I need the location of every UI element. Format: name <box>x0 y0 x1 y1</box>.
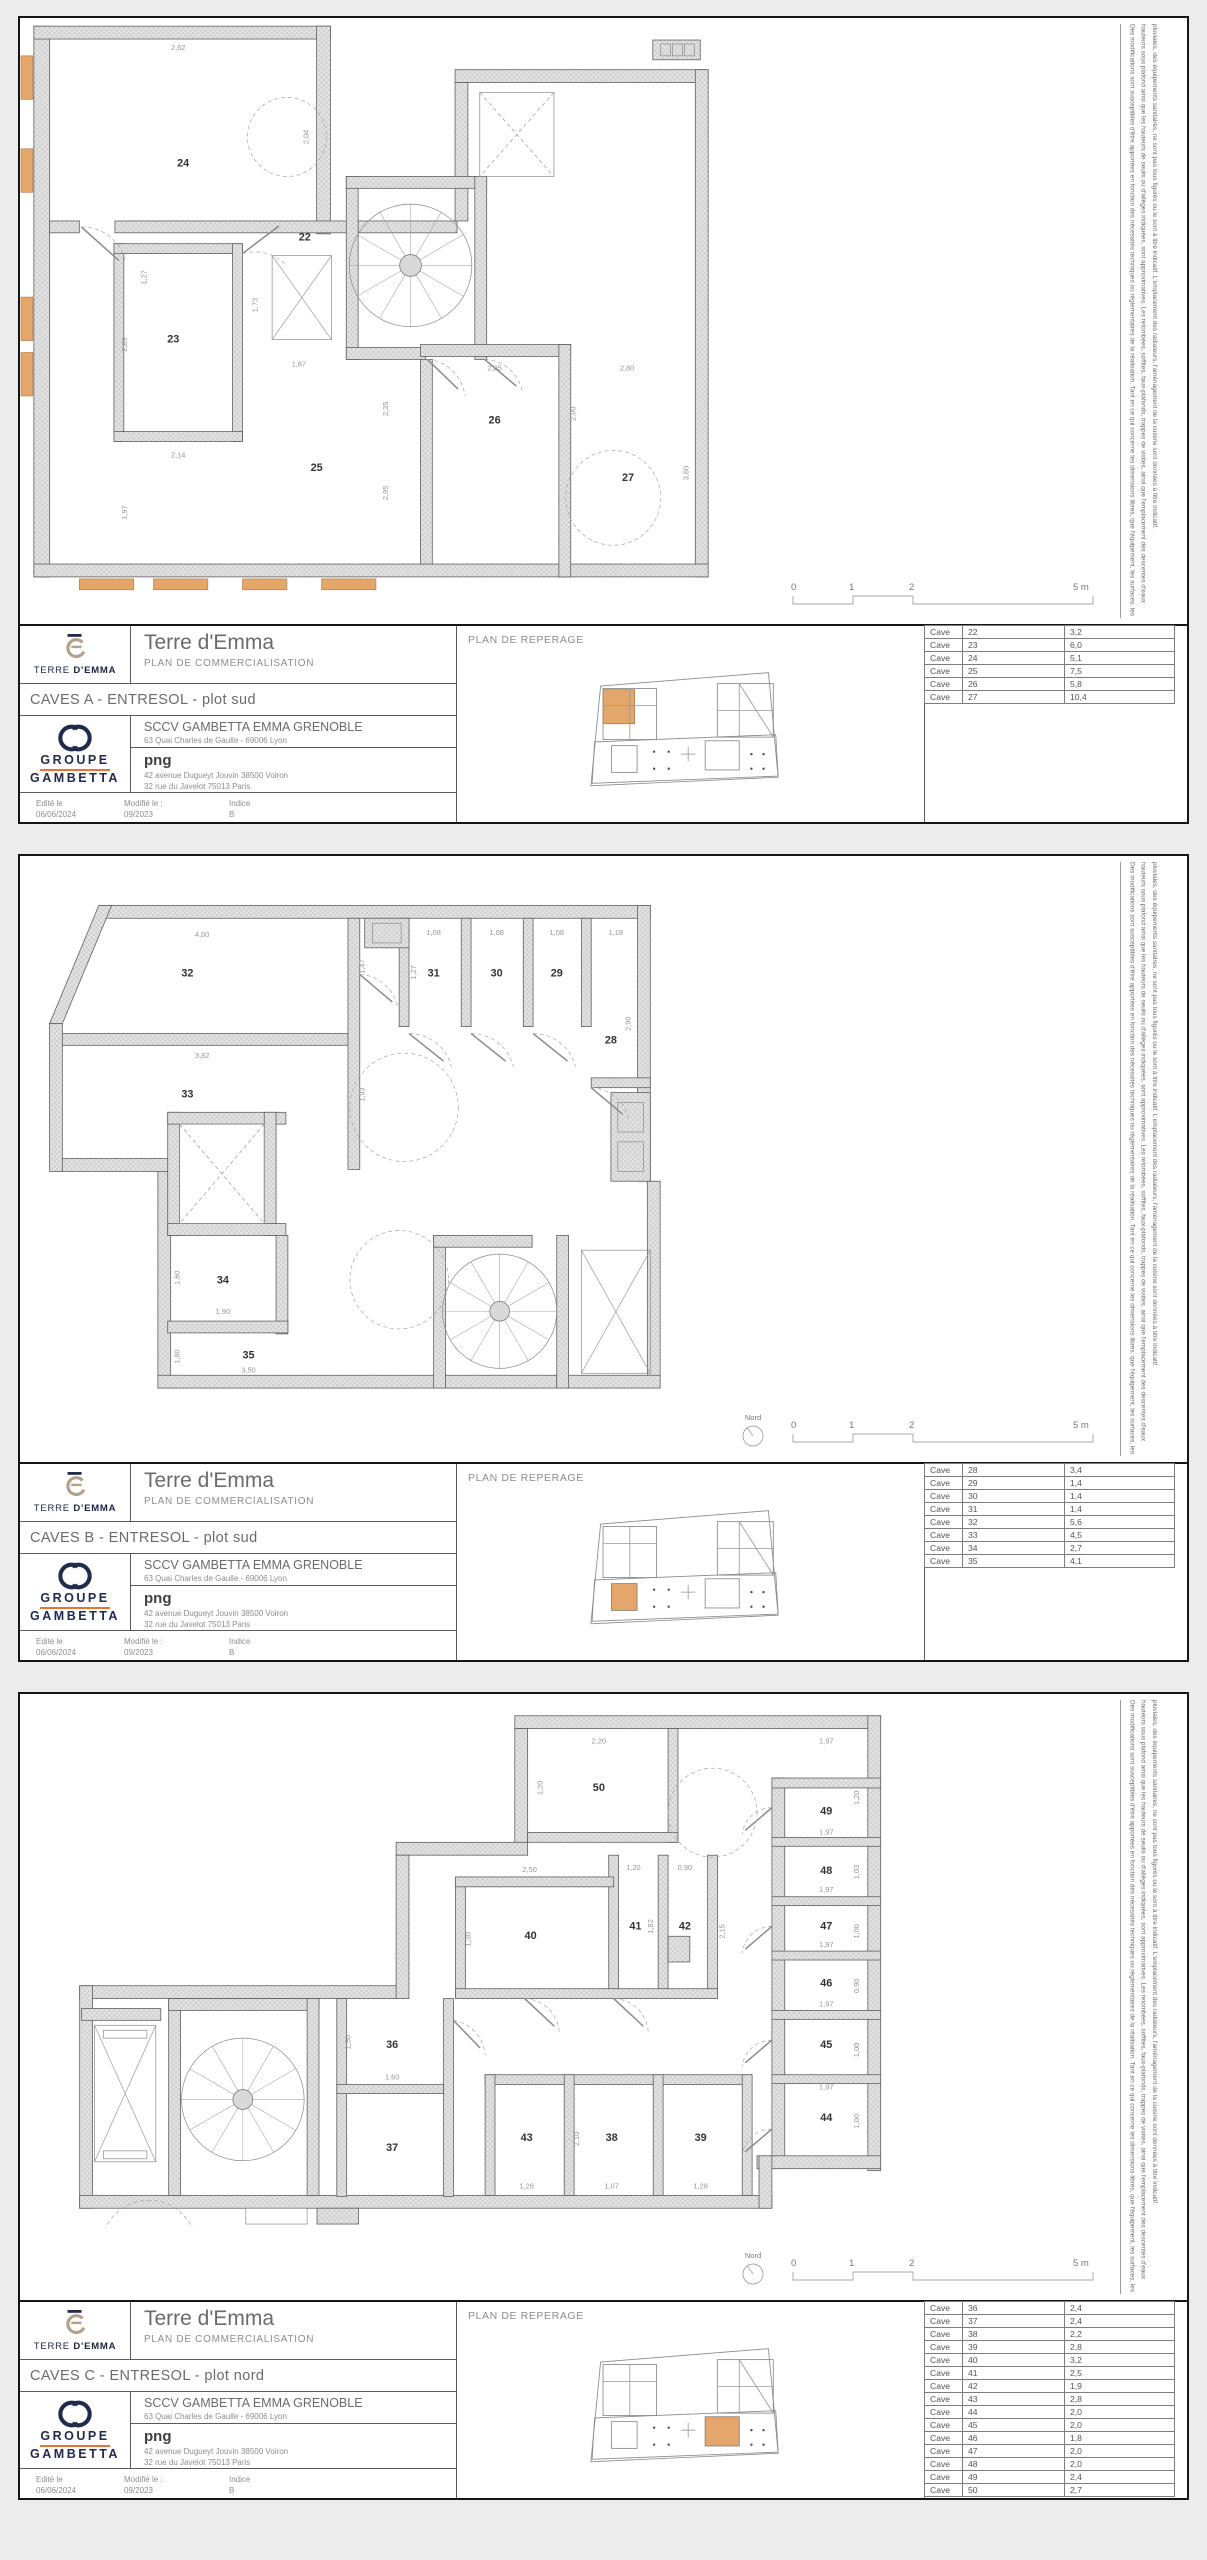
title-block-c: TERRE D'EMMA Terre d'Emma PLAN DE COMMER… <box>20 2300 1187 2498</box>
dim-label: 1,07 <box>604 2181 618 2190</box>
modified-value: 09/2023 <box>124 2485 229 2496</box>
room-number: 32 <box>181 967 193 979</box>
room-number: 29 <box>551 967 563 979</box>
north-compass-icon <box>740 2260 766 2286</box>
cave-label: Cave <box>925 2458 963 2471</box>
room-number: 37 <box>386 2142 398 2154</box>
indice-label: Indice <box>229 1636 319 1647</box>
title-block-left: TERRE D'EMMA Terre d'Emma PLAN DE COMMER… <box>20 2302 457 2498</box>
cave-label: Cave <box>925 1503 963 1516</box>
cave-area: 2,0 <box>1065 2406 1175 2419</box>
issue-row: Edité le06/06/2024 Modifié le :09/2023 I… <box>20 1631 456 1659</box>
dim-label: 2,95 <box>381 486 390 500</box>
dim-label: 2,35 <box>381 402 390 416</box>
scale-tick-0: 0 <box>791 1420 796 1431</box>
header-row: TERRE D'EMMA Terre d'Emma PLAN DE COMMER… <box>20 1464 456 1522</box>
groupe-label: GROUPE <box>40 1591 109 1609</box>
scale-bar: 0 1 2 5 m <box>791 2256 1095 2286</box>
table-row: Cave311,4 <box>925 1503 1175 1516</box>
table-row: Cave403,2 <box>925 2354 1175 2367</box>
scale-tick-5: 5 m <box>1073 1420 1089 1431</box>
dim-label: 1,60 <box>385 2073 399 2082</box>
scale-tick-0: 0 <box>791 2258 796 2269</box>
room-number: 33 <box>181 1089 193 1101</box>
dim-label: 1,97 <box>819 2083 833 2092</box>
indice-cell: IndiceB <box>229 1636 319 1659</box>
table-row: Cave432,8 <box>925 2393 1175 2406</box>
cave-area: 2,8 <box>1065 2341 1175 2354</box>
edited-label: Edité le <box>36 2474 124 2485</box>
dim-label: 1,97 <box>819 1736 833 1745</box>
dim-label: 1,20 <box>535 1781 544 1795</box>
cave-area: 6,0 <box>1065 639 1175 652</box>
cave-label: Cave <box>925 2484 963 2497</box>
architect-address-2: 32 rue du Javelot 75013 Paris <box>144 781 456 792</box>
cave-number: 50 <box>963 2484 1065 2497</box>
document-type: PLAN DE COMMERCIALISATION <box>144 658 314 669</box>
room-number: 22 <box>299 232 311 244</box>
dim-label: 1,08 <box>550 928 564 937</box>
dim-label: 1,27 <box>409 965 418 979</box>
cave-label: Cave <box>925 1464 963 1477</box>
indice-value: B <box>229 2485 319 2496</box>
plan-name: CAVES A - ENTRESOL - plot sud <box>30 692 256 708</box>
terre-demma-monogram-icon <box>61 2309 89 2339</box>
table-row: Cave223,2 <box>925 626 1175 639</box>
client-address: 63 Quai Charles de Gaulle - 69006 Lyon <box>144 1574 456 1583</box>
terre-demma-logo: TERRE D'EMMA <box>20 2302 131 2359</box>
cave-label: Cave <box>925 2380 963 2393</box>
north-indicator: Nord <box>731 1413 775 1450</box>
company-row: GROUPE GAMBETTA SCCV GAMBETTA EMMA GRENO… <box>20 1554 456 1631</box>
north-label: Nord <box>731 1413 775 1422</box>
dim-label: 1,00 <box>852 2114 861 2128</box>
modified-value: 09/2023 <box>124 1647 229 1658</box>
room-number: 26 <box>489 415 501 427</box>
title-block-left: TERRE D'EMMA Terre d'Emma PLAN DE COMMER… <box>20 1464 457 1660</box>
logo-caption-bold: D'EMMA <box>73 1503 116 1514</box>
architect-block: png 42 avenue Dugueyt Jouvin 38500 Voiro… <box>131 748 456 792</box>
architect-address-1: 42 avenue Dugueyt Jouvin 38500 Voiron <box>144 770 456 781</box>
disclaimer-line: hauteurs sous plafond ainsi que les haut… <box>1137 1700 1147 2294</box>
dim-label: 2,90 <box>624 1016 633 1030</box>
floor-plan-c: 50 49 48 47 46 45 44 41 42 40 36 37 43 3… <box>20 1694 970 2228</box>
architect-name: png <box>144 2428 456 2445</box>
client-block: SCCV GAMBETTA EMMA GRENOBLE 63 Quai Char… <box>131 1554 456 1586</box>
indice-value: B <box>229 1647 319 1658</box>
table-row: Cave461,8 <box>925 2432 1175 2445</box>
room-number: 49 <box>820 1806 832 1818</box>
edited-value: 06/06/2024 <box>36 2485 124 2496</box>
dim-label: 2,89 <box>120 337 129 351</box>
dim-label: 1,60 <box>173 1271 182 1285</box>
dim-label: 1,87 <box>292 359 306 368</box>
project-title: Terre d'Emma <box>144 2307 314 2331</box>
dim-label: 1,97 <box>819 1885 833 1894</box>
reperage-panel: PLAN DE REPERAGE <box>456 2302 925 2498</box>
c-label: Cave <box>925 2328 963 2341</box>
cave-area: 2,7 <box>1065 2484 1175 2497</box>
architect-address-2: 32 rue du Javelot 75013 Paris <box>144 2457 456 2468</box>
indice-cell: IndiceB <box>229 798 319 821</box>
table-row: Cave257,5 <box>925 665 1175 678</box>
dim-label: 2,10 <box>572 2132 581 2146</box>
dim-label: 3,82 <box>195 1051 209 1060</box>
dim-label: 1,08 <box>426 928 440 937</box>
cave-number: 41 <box>963 2367 1065 2380</box>
dim-label: 1,30 <box>463 1932 472 1946</box>
reperage-label: PLAN DE REPERAGE <box>468 1472 584 1484</box>
plan-name-row: CAVES A - ENTRESOL - plot sud <box>20 684 456 716</box>
room-number: 34 <box>217 1275 229 1287</box>
terre-demma-monogram-icon <box>61 1471 89 1501</box>
scale-tick-0: 0 <box>791 582 796 593</box>
room-number: 38 <box>606 2132 618 2144</box>
sheet-caves-a: 24 23 22 25 26 27 2,62 2,04 2,89 2,14 1,… <box>18 16 1189 824</box>
cave-table-panel: Cave283,4 Cave291,4 Cave301,4 Cave311,4 … <box>924 1463 1175 1568</box>
key-plan-graphic <box>581 1490 799 1642</box>
cave-table-panel: Cave362,4 Cave372,4 Cave382,2 Cave392,8 … <box>924 2301 1175 2497</box>
north-compass-icon <box>740 1422 766 1448</box>
groupe-gambetta-monogram-icon <box>52 723 98 753</box>
plan-name: CAVES B - ENTRESOL - plot sud <box>30 1530 258 1546</box>
title-block-a: TERRE D'EMMA Terre d'Emma PLAN DE COMMER… <box>20 624 1187 822</box>
dim-label: 1,97 <box>819 1999 833 2008</box>
dim-label: 2,04 <box>302 130 311 144</box>
spiral-stair <box>182 2038 305 2161</box>
edited-cell: Edité le06/06/2024 <box>36 1636 124 1659</box>
dim-label: 2,85 <box>487 363 501 372</box>
header-text: Terre d'Emma PLAN DE COMMERCIALISATION <box>131 626 314 683</box>
cave-number: 37 <box>963 2315 1065 2328</box>
cave-area: 3,2 <box>1065 2354 1175 2367</box>
gambetta-label: GAMBETTA <box>30 771 120 785</box>
room-number: 40 <box>525 1930 537 1942</box>
scale-bar-graphic: 0 1 2 5 m <box>791 2256 1095 2286</box>
disclaimer-line: pluviales, des équipements sanitaires, n… <box>1149 862 1159 1456</box>
cave-area: 2,4 <box>1065 2471 1175 2484</box>
cave-area: 1,8 <box>1065 2432 1175 2445</box>
dim-label: 1,97 <box>120 505 129 519</box>
logo-caption-bold: D'EMMA <box>73 2341 116 2352</box>
table-row: Cave382,2 <box>925 2328 1175 2341</box>
table-row: Cave245,1 <box>925 652 1175 665</box>
scale-bar-graphic: 0 1 2 5 m <box>791 1418 1095 1448</box>
north-label: Nord <box>731 2251 775 2260</box>
table-row: Cave301,4 <box>925 1490 1175 1503</box>
edited-label: Edité le <box>36 1636 124 1647</box>
cave-area: 2,0 <box>1065 2419 1175 2432</box>
dim-label: 2,14 <box>171 450 185 459</box>
groupe-gambetta-monogram-icon <box>52 2399 98 2429</box>
terre-demma-logo-caption: TERRE D'EMMA <box>34 665 117 676</box>
document-page: 24 23 22 25 26 27 2,62 2,04 2,89 2,14 1,… <box>0 0 1207 2560</box>
cave-label: Cave <box>925 2354 963 2367</box>
cave-label: Cave <box>925 665 963 678</box>
terre-demma-logo: TERRE D'EMMA <box>20 1464 131 1521</box>
cave-label: Cave <box>925 2432 963 2445</box>
cave-area: 2,4 <box>1065 2315 1175 2328</box>
cave-label: Cave <box>925 1477 963 1490</box>
table-row: Cave492,4 <box>925 2471 1175 2484</box>
cave-number: 45 <box>963 2419 1065 2432</box>
cave-area: 2,5 <box>1065 2367 1175 2380</box>
cave-number: 46 <box>963 2432 1065 2445</box>
cave-number: 36 <box>963 2302 1065 2315</box>
plan-area-a: 24 23 22 25 26 27 2,62 2,04 2,89 2,14 1,… <box>20 18 1187 626</box>
cave-label: Cave <box>925 1555 963 1568</box>
company-row: GROUPE GAMBETTA SCCV GAMBETTA EMMA GRENO… <box>20 716 456 793</box>
client-address: 63 Quai Charles de Gaulle - 69006 Lyon <box>144 736 456 745</box>
cave-number: 24 <box>963 652 1065 665</box>
document-type: PLAN DE COMMERCIALISATION <box>144 2334 314 2345</box>
cave-area: 5,6 <box>1065 1516 1175 1529</box>
client-block: SCCV GAMBETTA EMMA GRENOBLE 63 Quai Char… <box>131 2392 456 2424</box>
cave-label: Cave <box>925 691 963 704</box>
cave-label: Cave <box>925 1516 963 1529</box>
modified-label: Modifié le : <box>124 1636 229 1647</box>
cave-number: 39 <box>963 2341 1065 2354</box>
table-row: Cave236,0 <box>925 639 1175 652</box>
room-number: 44 <box>820 2112 832 2124</box>
dimension-labels: 2,62 2,04 2,89 2,14 1,73 1,87 2,35 2,95 … <box>120 43 691 520</box>
cave-area: 1,4 <box>1065 1503 1175 1516</box>
cave-number: 28 <box>963 1464 1065 1477</box>
scale-tick-2: 2 <box>909 2258 914 2269</box>
cave-area: 2,2 <box>1065 2328 1175 2341</box>
table-row: Cave452,0 <box>925 2419 1175 2432</box>
cave-label: Cave <box>925 1490 963 1503</box>
dim-label: 1,27 <box>140 270 149 284</box>
header-text: Terre d'Emma PLAN DE COMMERCIALISATION <box>131 2302 314 2359</box>
table-row: Cave392,8 <box>925 2341 1175 2354</box>
plan-name: CAVES C - ENTRESOL - plot nord <box>30 2368 264 2384</box>
disclaimer-line: hauteurs sous plafond ainsi que les haut… <box>1137 862 1147 1456</box>
disclaimer-line: hauteurs sous plafond ainsi que les haut… <box>1137 24 1147 618</box>
room-number: 24 <box>177 158 189 170</box>
cave-area: 2,8 <box>1065 2393 1175 2406</box>
indice-cell: IndiceB <box>229 2474 319 2497</box>
cave-number: 25 <box>963 665 1065 678</box>
client-architect-column: SCCV GAMBETTA EMMA GRENOBLE 63 Quai Char… <box>131 2392 456 2468</box>
cave-label: Cave <box>925 2341 963 2354</box>
scale-bar: 0 1 2 5 m <box>791 1418 1095 1448</box>
room-number: 39 <box>695 2132 707 2144</box>
title-block-b: TERRE D'EMMA Terre d'Emma PLAN DE COMMER… <box>20 1462 1187 1660</box>
issue-row: Edité le06/06/2024 Modifié le :09/2023 I… <box>20 793 456 821</box>
cave-area: 2,0 <box>1065 2445 1175 2458</box>
groupe-gambetta-caption: GROUPE GAMBETTA <box>30 2429 120 2462</box>
cave-number: 32 <box>963 1516 1065 1529</box>
cave-number: 42 <box>963 2380 1065 2393</box>
scale-tick-2: 2 <box>909 582 914 593</box>
cave-area-table: Cave223,2 Cave236,0 Cave245,1 Cave257,5 … <box>924 625 1175 704</box>
sheet-caves-b: 32 33 31 30 29 28 34 35 4,00 1,47 3,82 1… <box>18 854 1189 1662</box>
terre-demma-logo-caption: TERRE D'EMMA <box>34 2341 117 2352</box>
header-text: Terre d'Emma PLAN DE COMMERCIALISATION <box>131 1464 314 1521</box>
cave-label: Cave <box>925 1529 963 1542</box>
logo-caption-regular: TERRE <box>34 2341 74 2352</box>
dim-label: 1,08 <box>489 928 503 937</box>
project-title: Terre d'Emma <box>144 1469 314 1493</box>
doors <box>350 974 629 1329</box>
cave-number: 27 <box>963 691 1065 704</box>
disclaimer-line: Des modifications sont susceptibles d'êt… <box>1126 24 1136 618</box>
modified-label: Modifié le : <box>124 798 229 809</box>
document-type: PLAN DE COMMERCIALISATION <box>144 1496 314 1507</box>
dim-label: 2,62 <box>171 43 185 52</box>
table-row: Cave362,4 <box>925 2302 1175 2315</box>
floor-plan-a: 24 23 22 25 26 27 2,62 2,04 2,89 2,14 1,… <box>20 18 722 592</box>
dim-label: 0,90 <box>678 1863 692 1872</box>
table-row: Cave291,4 <box>925 1477 1175 1490</box>
cave-area: 2,4 <box>1065 2302 1175 2315</box>
cave-area: 5,8 <box>1065 678 1175 691</box>
dim-label: 1,73 <box>250 298 259 312</box>
scale-tick-5: 5 m <box>1073 2258 1089 2269</box>
room-number: 46 <box>820 1978 832 1990</box>
reperage-panel: PLAN DE REPERAGE <box>456 626 925 822</box>
architect-address-2: 32 rue du Javelot 75013 Paris <box>144 1619 456 1630</box>
table-row: Cave2710,4 <box>925 691 1175 704</box>
cave-area: 1,4 <box>1065 1477 1175 1490</box>
modified-label: Modifié le : <box>124 2474 229 2485</box>
cave-number: 22 <box>963 626 1065 639</box>
room-number: 48 <box>820 1865 832 1877</box>
room-number: 36 <box>386 2039 398 2051</box>
dim-label: 1,18 <box>609 928 623 937</box>
room-number: 25 <box>311 462 323 474</box>
table-row: Cave482,0 <box>925 2458 1175 2471</box>
plan-name-row: CAVES C - ENTRESOL - plot nord <box>20 2360 456 2392</box>
room-number: 28 <box>605 1034 617 1046</box>
cave-label: Cave <box>925 2445 963 2458</box>
cave-label: Cave <box>925 2406 963 2419</box>
groupe-label: GROUPE <box>40 2429 109 2447</box>
cave-area: 4,5 <box>1065 1529 1175 1542</box>
key-plan-graphic <box>581 2328 799 2480</box>
dim-label: 1,03 <box>852 1865 861 1879</box>
dim-label: 1,20 <box>626 1863 640 1872</box>
indice-value: B <box>229 809 319 820</box>
plan-name-row: CAVES B - ENTRESOL - plot sud <box>20 1522 456 1554</box>
dim-label: 2,80 <box>620 363 634 372</box>
dim-label: 1,20 <box>852 1791 861 1805</box>
cave-number: 40 <box>963 2354 1065 2367</box>
groupe-label: GROUPE <box>40 753 109 771</box>
cave-label: Cave <box>925 2419 963 2432</box>
logo-caption-regular: TERRE <box>34 1503 74 1514</box>
terre-demma-monogram-icon <box>61 633 89 663</box>
project-title: Terre d'Emma <box>144 631 314 655</box>
architect-address: 42 avenue Dugueyt Jouvin 38500 Voiron 32… <box>144 1608 456 1630</box>
doors <box>81 97 660 545</box>
legal-disclaimer: Des modifications sont susceptibles d'êt… <box>1120 862 1179 1456</box>
shafts <box>180 923 651 1373</box>
dim-label: 1,50 <box>344 2035 353 2049</box>
floor-plan-b: 32 33 31 30 29 28 34 35 4,00 1,47 3,82 1… <box>20 856 670 1408</box>
dim-label: 1,90 <box>216 1307 230 1316</box>
architect-block: png 42 avenue Dugueyt Jouvin 38500 Voiro… <box>131 1586 456 1630</box>
dim-label: 1,80 <box>173 1349 182 1363</box>
cave-number: 35 <box>963 1555 1065 1568</box>
cave-area: 7,5 <box>1065 665 1175 678</box>
client-architect-column: SCCV GAMBETTA EMMA GRENOBLE 63 Quai Char… <box>131 1554 456 1630</box>
cave-label: Cave <box>925 2302 963 2315</box>
reperage-label: PLAN DE REPERAGE <box>468 2310 584 2322</box>
logo-caption-bold: D'EMMA <box>73 665 116 676</box>
cave-number: 49 <box>963 2471 1065 2484</box>
plan-area-b: 32 33 31 30 29 28 34 35 4,00 1,47 3,82 1… <box>20 856 1187 1464</box>
legal-disclaimer: Des modifications sont susceptibles d'êt… <box>1120 24 1179 618</box>
cave-number: 44 <box>963 2406 1065 2419</box>
architect-name: png <box>144 1590 456 1607</box>
architect-address: 42 avenue Dugueyt Jouvin 38500 Voiron 32… <box>144 770 456 792</box>
cave-label: Cave <box>925 2393 963 2406</box>
gambetta-label: GAMBETTA <box>30 2447 120 2461</box>
header-row: TERRE D'EMMA Terre d'Emma PLAN DE COMMER… <box>20 626 456 684</box>
cave-area: 10,4 <box>1065 691 1175 704</box>
edited-value: 06/06/2024 <box>36 1647 124 1658</box>
cave-number: 23 <box>963 639 1065 652</box>
cave-area: 1,4 <box>1065 1490 1175 1503</box>
modified-cell: Modifié le :09/2023 <box>124 1636 229 1659</box>
company-row: GROUPE GAMBETTA SCCV GAMBETTA EMMA GRENO… <box>20 2392 456 2469</box>
cave-number: 48 <box>963 2458 1065 2471</box>
table-row: Cave421,9 <box>925 2380 1175 2393</box>
modified-cell: Modifié le :09/2023 <box>124 2474 229 2497</box>
groupe-gambetta-logo: GROUPE GAMBETTA <box>20 716 131 792</box>
groupe-gambetta-monogram-icon <box>52 1561 98 1591</box>
room-number: 50 <box>593 1782 605 1794</box>
terre-demma-logo: TERRE D'EMMA <box>20 626 131 683</box>
room-number: 42 <box>679 1920 691 1932</box>
spiral-stair <box>443 1254 557 1368</box>
edited-cell: Edité le06/06/2024 <box>36 798 124 821</box>
dim-label: 3,50 <box>241 1365 255 1374</box>
table-row: Cave342,7 <box>925 1542 1175 1555</box>
room-number: 45 <box>820 2039 832 2051</box>
room-number: 23 <box>167 334 179 346</box>
issue-row: Edité le06/06/2024 Modifié le :09/2023 I… <box>20 2469 456 2497</box>
dim-label: 1,00 <box>852 1924 861 1938</box>
client-block: SCCV GAMBETTA EMMA GRENOBLE 63 Quai Char… <box>131 716 456 748</box>
header-row: TERRE D'EMMA Terre d'Emma PLAN DE COMMER… <box>20 2302 456 2360</box>
indice-label: Indice <box>229 798 319 809</box>
scale-tick-1: 1 <box>849 582 854 593</box>
key-plan <box>581 652 799 809</box>
dim-label: 3,60 <box>681 466 690 480</box>
reperage-panel: PLAN DE REPERAGE <box>456 1464 925 1660</box>
plan-area-c: 50 49 48 47 46 45 44 41 42 40 36 37 43 3… <box>20 1694 1187 2302</box>
cave-area: 1,9 <box>1065 2380 1175 2393</box>
room-number: 30 <box>491 967 503 979</box>
dim-label: 1,97 <box>819 1940 833 1949</box>
table-row: Cave325,6 <box>925 1516 1175 1529</box>
cave-number: 30 <box>963 1490 1065 1503</box>
dim-label: 1,28 <box>693 2181 707 2190</box>
room-number: 31 <box>428 967 440 979</box>
cave-label: Cave <box>925 639 963 652</box>
cave-label: Cave <box>925 2471 963 2484</box>
dim-label: 0,90 <box>852 1979 861 1993</box>
table-row: Cave354,1 <box>925 1555 1175 1568</box>
terre-demma-logo-caption: TERRE D'EMMA <box>34 1503 117 1514</box>
dim-label: 2,00 <box>569 407 578 421</box>
architect-address-1: 42 avenue Dugueyt Jouvin 38500 Voiron <box>144 1608 456 1619</box>
disclaimer-line: pluviales, des équipements sanitaires, n… <box>1149 1700 1159 2294</box>
cave-label: Cave <box>925 2367 963 2380</box>
